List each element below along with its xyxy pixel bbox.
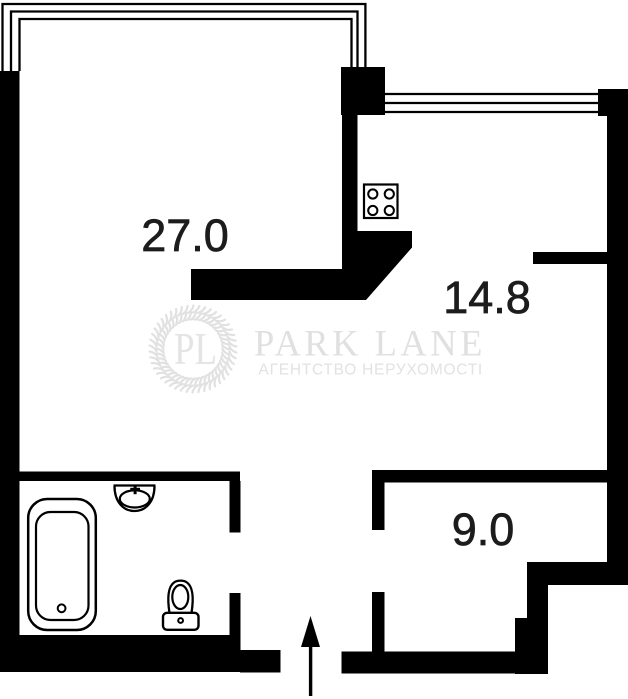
svg-text:PL: PL [174,323,217,374]
svg-text:14.8: 14.8 [443,272,531,323]
svg-text:PARK LANE: PARK LANE [254,323,486,364]
svg-text:АГЕНТСТВО НЕРУХОМОСТІ: АГЕНТСТВО НЕРУХОМОСТІ [259,362,484,379]
svg-text:27.0: 27.0 [141,210,229,261]
svg-text:9.0: 9.0 [452,504,515,555]
